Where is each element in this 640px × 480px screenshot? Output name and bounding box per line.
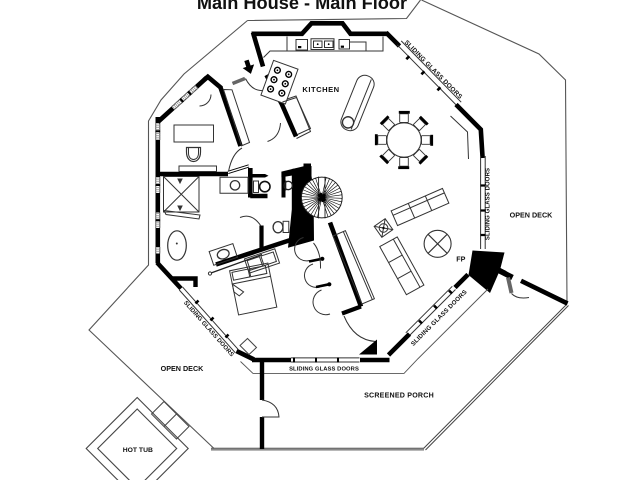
svg-text:SCREENED PORCH: SCREENED PORCH [364, 392, 434, 400]
svg-text:KITCHEN: KITCHEN [302, 85, 339, 94]
svg-text:Main House - Main Floor: Main House - Main Floor [197, 0, 407, 13]
svg-text:SLIDING GLASS DOORS: SLIDING GLASS DOORS [485, 168, 491, 240]
svg-text:SLIDING GLASS DOORS: SLIDING GLASS DOORS [410, 289, 469, 348]
svg-text:FP: FP [456, 255, 465, 264]
svg-text:SLIDING GLASS DOORS: SLIDING GLASS DOORS [182, 300, 234, 358]
svg-text:SLIDING GLASS DOORS: SLIDING GLASS DOORS [403, 39, 464, 101]
svg-text:HOT TUB: HOT TUB [123, 447, 153, 454]
svg-text:SLIDING GLASS DOORS: SLIDING GLASS DOORS [289, 367, 359, 373]
svg-text:OPEN DECK: OPEN DECK [510, 211, 554, 220]
svg-text:OPEN DECK: OPEN DECK [161, 364, 205, 373]
